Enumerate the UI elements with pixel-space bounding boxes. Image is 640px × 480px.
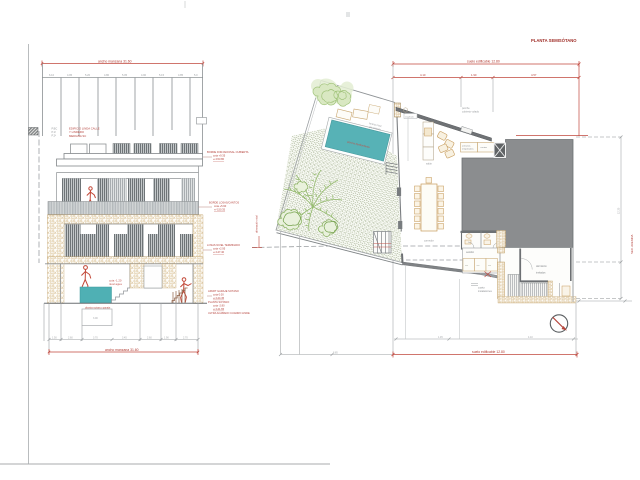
svg-text:arm: arm [477,265,481,267]
svg-text:cota +2.95: cota +2.95 [213,247,226,251]
svg-text:arm: arm [488,265,492,267]
svg-text:3.70: 3.70 [93,337,98,340]
svg-text:ancho manzana 31.60: ancho manzana 31.60 [105,348,139,352]
svg-text:3.45: 3.45 [122,337,127,340]
svg-text:8.85: 8.85 [333,352,338,355]
svg-text:vestidor: vestidor [466,251,474,254]
svg-text:+/-153.80: +/-153.80 [213,157,225,161]
svg-text:5.15: 5.15 [159,73,165,77]
svg-text:invitados: invitados [536,272,546,275]
svg-text:1.45: 1.45 [438,336,443,339]
svg-text:4.85: 4.85 [178,73,184,77]
svg-text:empotrados: empotrados [462,148,474,151]
svg-text:instalaciones: instalaciones [478,290,493,293]
svg-text:cota -2.80: cota -2.80 [213,303,225,307]
svg-text:+/-144.45: +/-144.45 [213,296,225,300]
svg-text:4.10: 4.10 [528,336,533,339]
svg-text:cubierto volado: cubierto volado [462,111,480,114]
svg-text:P.BC: P.BC [52,127,58,131]
svg-text:nivel agua: nivel agua [109,282,122,286]
svg-text:BORDE FORJADO/SAL CUBIERTA: BORDE FORJADO/SAL CUBIERTA [207,150,249,154]
svg-text:1.90: 1.90 [471,73,477,77]
svg-text:armarios: armarios [462,145,471,148]
svg-text:12.30: 12.30 [618,207,621,214]
svg-text:salón: salón [426,163,433,166]
svg-text:P.1ª: P.1ª [52,130,57,134]
svg-text:+/-150.35: +/-150.35 [214,208,226,212]
svg-text:cocina: cocina [481,147,488,149]
svg-text:cota +5.90: cota +5.90 [214,204,227,208]
svg-text:5.05: 5.05 [122,73,128,77]
svg-text:+/-147.40: +/-147.40 [213,250,225,254]
svg-text:arm: arm [465,265,469,267]
svg-text:4.57: 4.57 [531,73,537,77]
svg-text:5.0: 5.0 [194,73,198,77]
svg-text:cota +9.35: cota +9.35 [213,154,226,158]
svg-text:ULTRA ACABADO CUADRO LINDE: ULTRA ACABADO CUADRO LINDE [208,311,250,315]
svg-text:cota 0.00: cota 0.00 [213,292,224,296]
svg-text:alineación vial: alineación vial [255,215,259,233]
svg-text:ancho manzana 31.60: ancho manzana 31.60 [98,59,132,63]
svg-text:+/-141.65: +/-141.65 [213,307,225,311]
svg-text:4.80: 4.80 [104,73,110,77]
svg-text:dormitorio: dormitorio [536,265,547,268]
svg-text:3.00: 3.00 [93,317,98,320]
svg-text:4.90: 4.90 [141,73,147,77]
svg-text:suelo edificable 12.80: suelo edificable 12.80 [472,350,505,354]
svg-text:5.20: 5.20 [85,73,91,77]
svg-text:2.60: 2.60 [147,337,152,340]
svg-text:4.95: 4.95 [67,73,73,77]
svg-text:2.70: 2.70 [183,337,188,340]
svg-text:vestíbulo: vestíbulo [405,115,415,118]
svg-text:PLANTA SEMISÓTANO: PLANTA SEMISÓTANO [531,38,577,43]
svg-text:SEO. AVENIDA: SEO. AVENIDA [630,234,634,254]
svg-text:6.10: 6.10 [49,73,55,77]
svg-text:2.60: 2.60 [68,337,73,340]
svg-text:comedor: comedor [424,240,434,243]
svg-text:APART GARAJE SOTANO: APART GARAJE SOTANO [208,289,239,293]
svg-text:LOSAS NIVEL TERMINADO: LOSAS NIVEL TERMINADO [207,243,240,247]
svg-text:1.50: 1.50 [52,337,57,340]
svg-text:4.10: 4.10 [420,73,426,77]
svg-text:MEDIANA SC: MEDIANA SC [69,134,86,138]
svg-text:BORDE LOSAS/CANTOS: BORDE LOSAS/CANTOS [209,201,239,205]
svg-text:1.90: 1.90 [164,337,169,340]
svg-text:suelo edificable 12.80: suelo edificable 12.80 [467,60,500,64]
svg-text:PLANTA SOTANO: PLANTA SOTANO [208,300,229,304]
svg-text:P.2ª: P.2ª [52,134,57,138]
